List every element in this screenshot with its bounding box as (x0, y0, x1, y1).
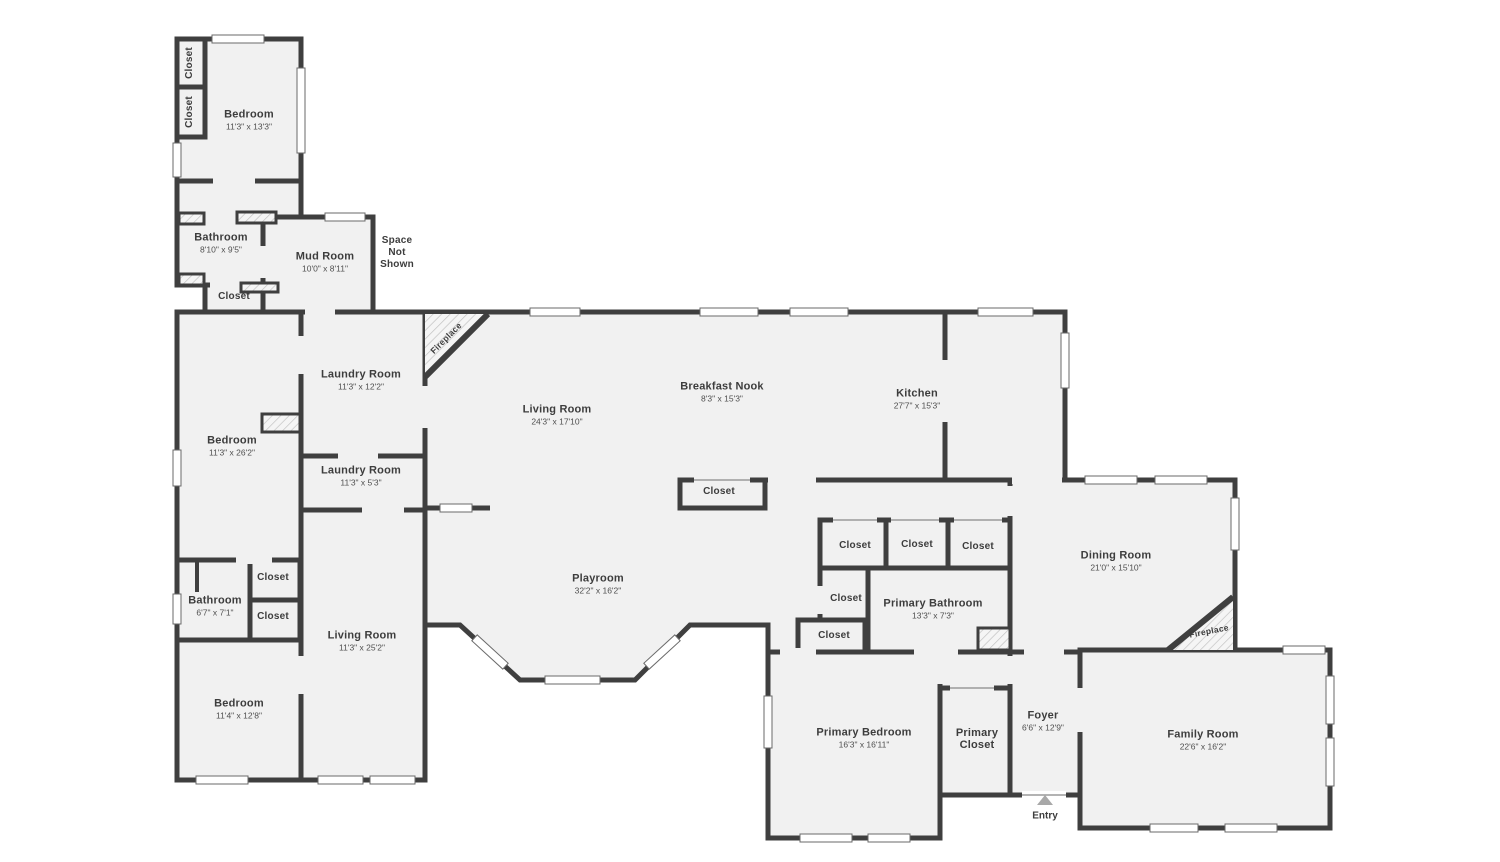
closet-box-a (177, 39, 205, 87)
closet-box-d (680, 480, 765, 508)
closet-box-k (798, 620, 865, 652)
room-family (1080, 650, 1330, 828)
floor-plan: Closet Closet Bedroom 11'3" x 13'3" Bath… (0, 0, 1500, 862)
closet-box-f (886, 520, 948, 568)
room-laundry-2 (301, 456, 425, 510)
room-primary-bedroom (768, 652, 940, 838)
closet-box-e (820, 520, 886, 568)
closet-box-g (948, 520, 1010, 568)
closet-box-j (820, 568, 868, 620)
room-foyer (1010, 652, 1080, 795)
room-bathroom-2 (177, 560, 250, 640)
walls-layer (177, 39, 1330, 838)
room-bedroom-3 (177, 640, 301, 780)
closet-box-b (177, 87, 205, 137)
room-primary-closet (940, 688, 1010, 795)
room-mudroom (263, 217, 373, 313)
floor-plan-drawing (0, 0, 1500, 862)
room-laundry-1 (301, 312, 425, 456)
room-living-2 (301, 510, 425, 780)
room-bedroom-2 (177, 312, 301, 560)
closet-box-i (250, 600, 300, 640)
hall-to-foyer (940, 652, 1010, 688)
closet-box-h (250, 560, 300, 600)
